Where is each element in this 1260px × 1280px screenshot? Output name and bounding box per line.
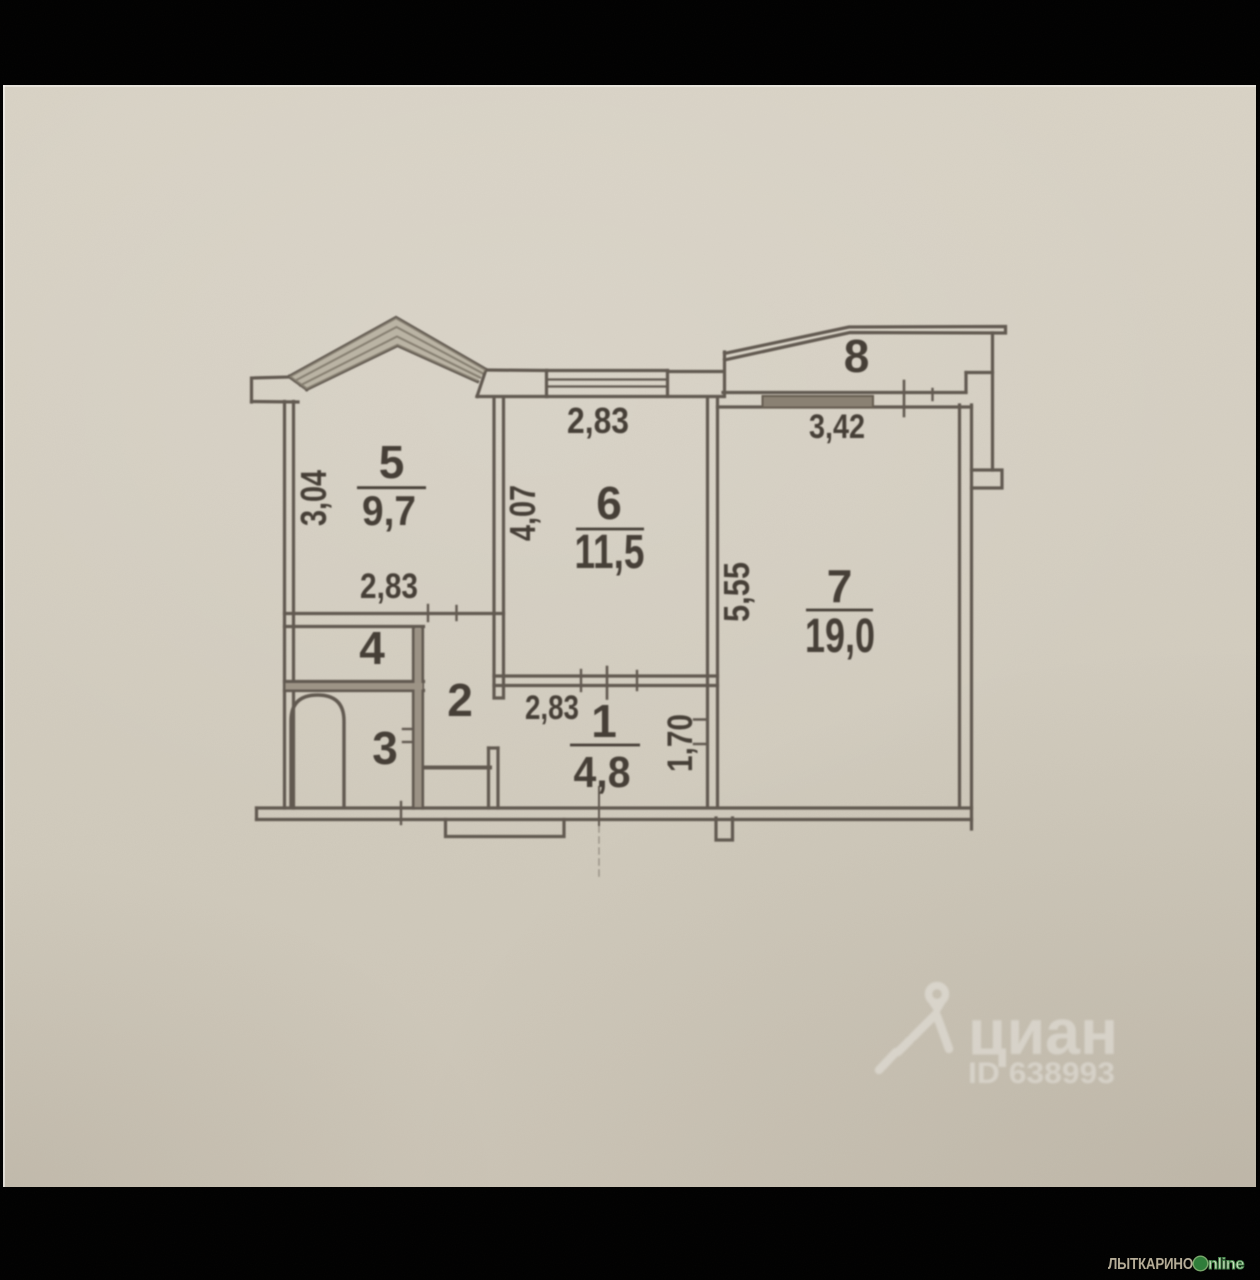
svg-text:nline: nline [1208, 1256, 1245, 1273]
svg-text:ЛЫТКАРИНО: ЛЫТКАРИНО [1108, 1256, 1193, 1273]
